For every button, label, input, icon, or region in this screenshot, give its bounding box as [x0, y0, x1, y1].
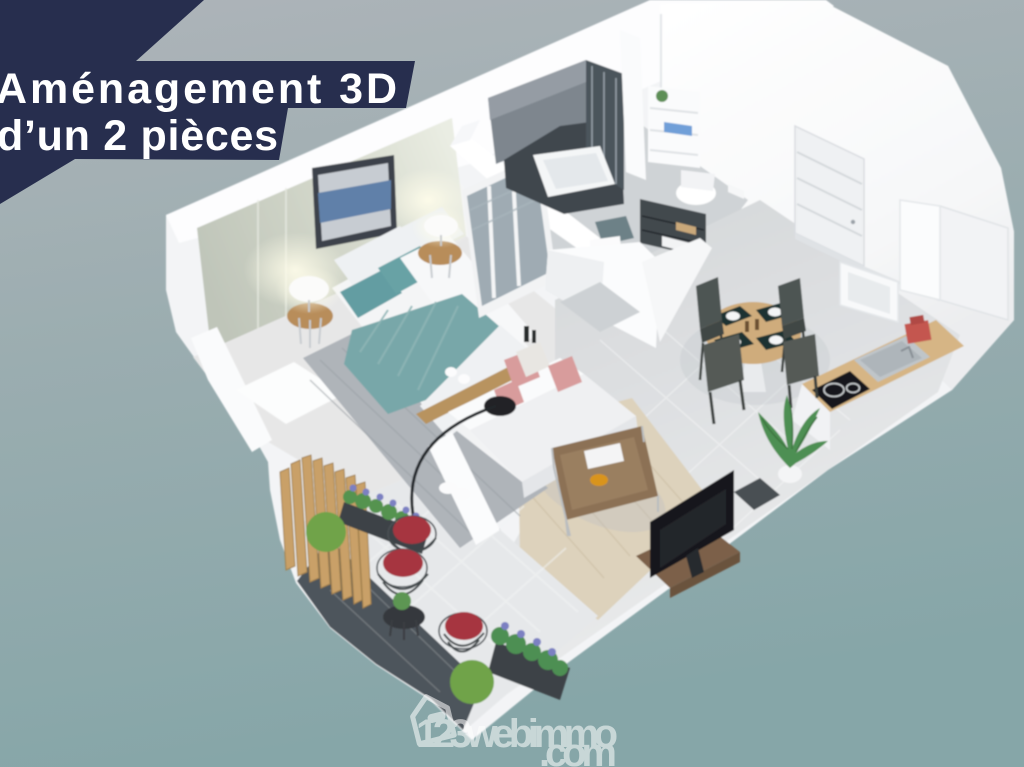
- svg-text:d’un 2 pièces: d’un 2 pièces: [0, 112, 278, 160]
- svg-text:.com: .com: [539, 731, 617, 767]
